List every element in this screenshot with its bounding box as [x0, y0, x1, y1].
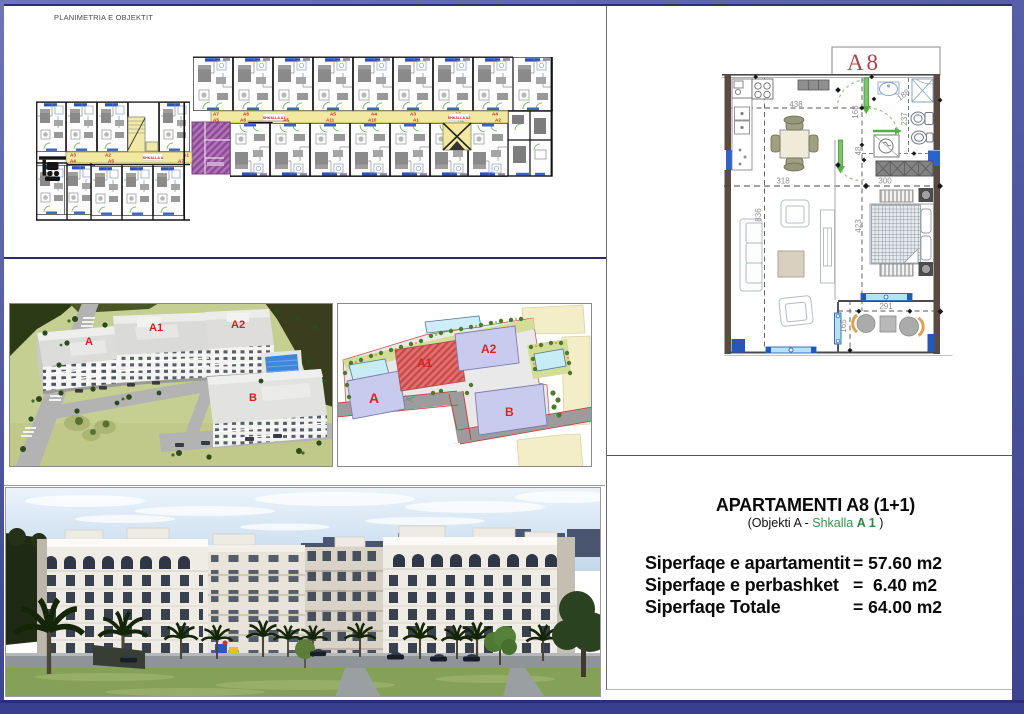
svg-text:A1: A1 — [149, 322, 163, 334]
svg-text:B: B — [505, 405, 514, 419]
svg-text:A2: A2 — [495, 118, 501, 123]
svg-text:A1: A1 — [413, 118, 419, 123]
svg-text:300: 300 — [878, 177, 892, 186]
svg-text:A7: A7 — [178, 159, 184, 164]
svg-text:B: B — [249, 392, 257, 404]
svg-text:168: 168 — [851, 105, 860, 119]
svg-text:291: 291 — [879, 302, 893, 311]
svg-text:SHKALLA A2: SHKALLA A2 — [448, 116, 471, 120]
svg-text:A8: A8 — [847, 50, 881, 75]
svg-text:A3: A3 — [410, 112, 416, 117]
svg-text:A6: A6 — [243, 112, 249, 117]
svg-text:A5: A5 — [330, 112, 336, 117]
svg-text:A8: A8 — [240, 118, 246, 123]
svg-text:836: 836 — [754, 208, 763, 222]
svg-text:A5: A5 — [283, 118, 289, 123]
svg-text:318: 318 — [776, 177, 790, 186]
svg-text:165: 165 — [839, 319, 848, 333]
svg-text:SHKALLA A: SHKALLA A — [143, 156, 164, 160]
svg-text:A2: A2 — [231, 319, 245, 331]
svg-text:A2: A2 — [105, 153, 111, 158]
svg-text:A4: A4 — [70, 159, 76, 164]
svg-text:SHKALLA A1: SHKALLA A1 — [263, 116, 286, 120]
svg-text:A11: A11 — [326, 118, 335, 123]
svg-text:A: A — [369, 390, 379, 406]
svg-text:A10: A10 — [368, 118, 377, 123]
svg-text:A4: A4 — [371, 112, 377, 117]
svg-text:A: A — [85, 336, 93, 348]
svg-text:A2: A2 — [481, 342, 497, 356]
svg-text:423: 423 — [854, 219, 863, 233]
svg-text:A4: A4 — [492, 112, 498, 117]
svg-text:48: 48 — [854, 146, 863, 155]
svg-text:A5: A5 — [108, 159, 114, 164]
svg-text:438: 438 — [789, 100, 803, 109]
svg-text:A7: A7 — [213, 112, 219, 117]
svg-text:237: 237 — [900, 112, 909, 126]
svg-text:A1: A1 — [417, 356, 433, 370]
svg-text:A3: A3 — [70, 153, 76, 158]
